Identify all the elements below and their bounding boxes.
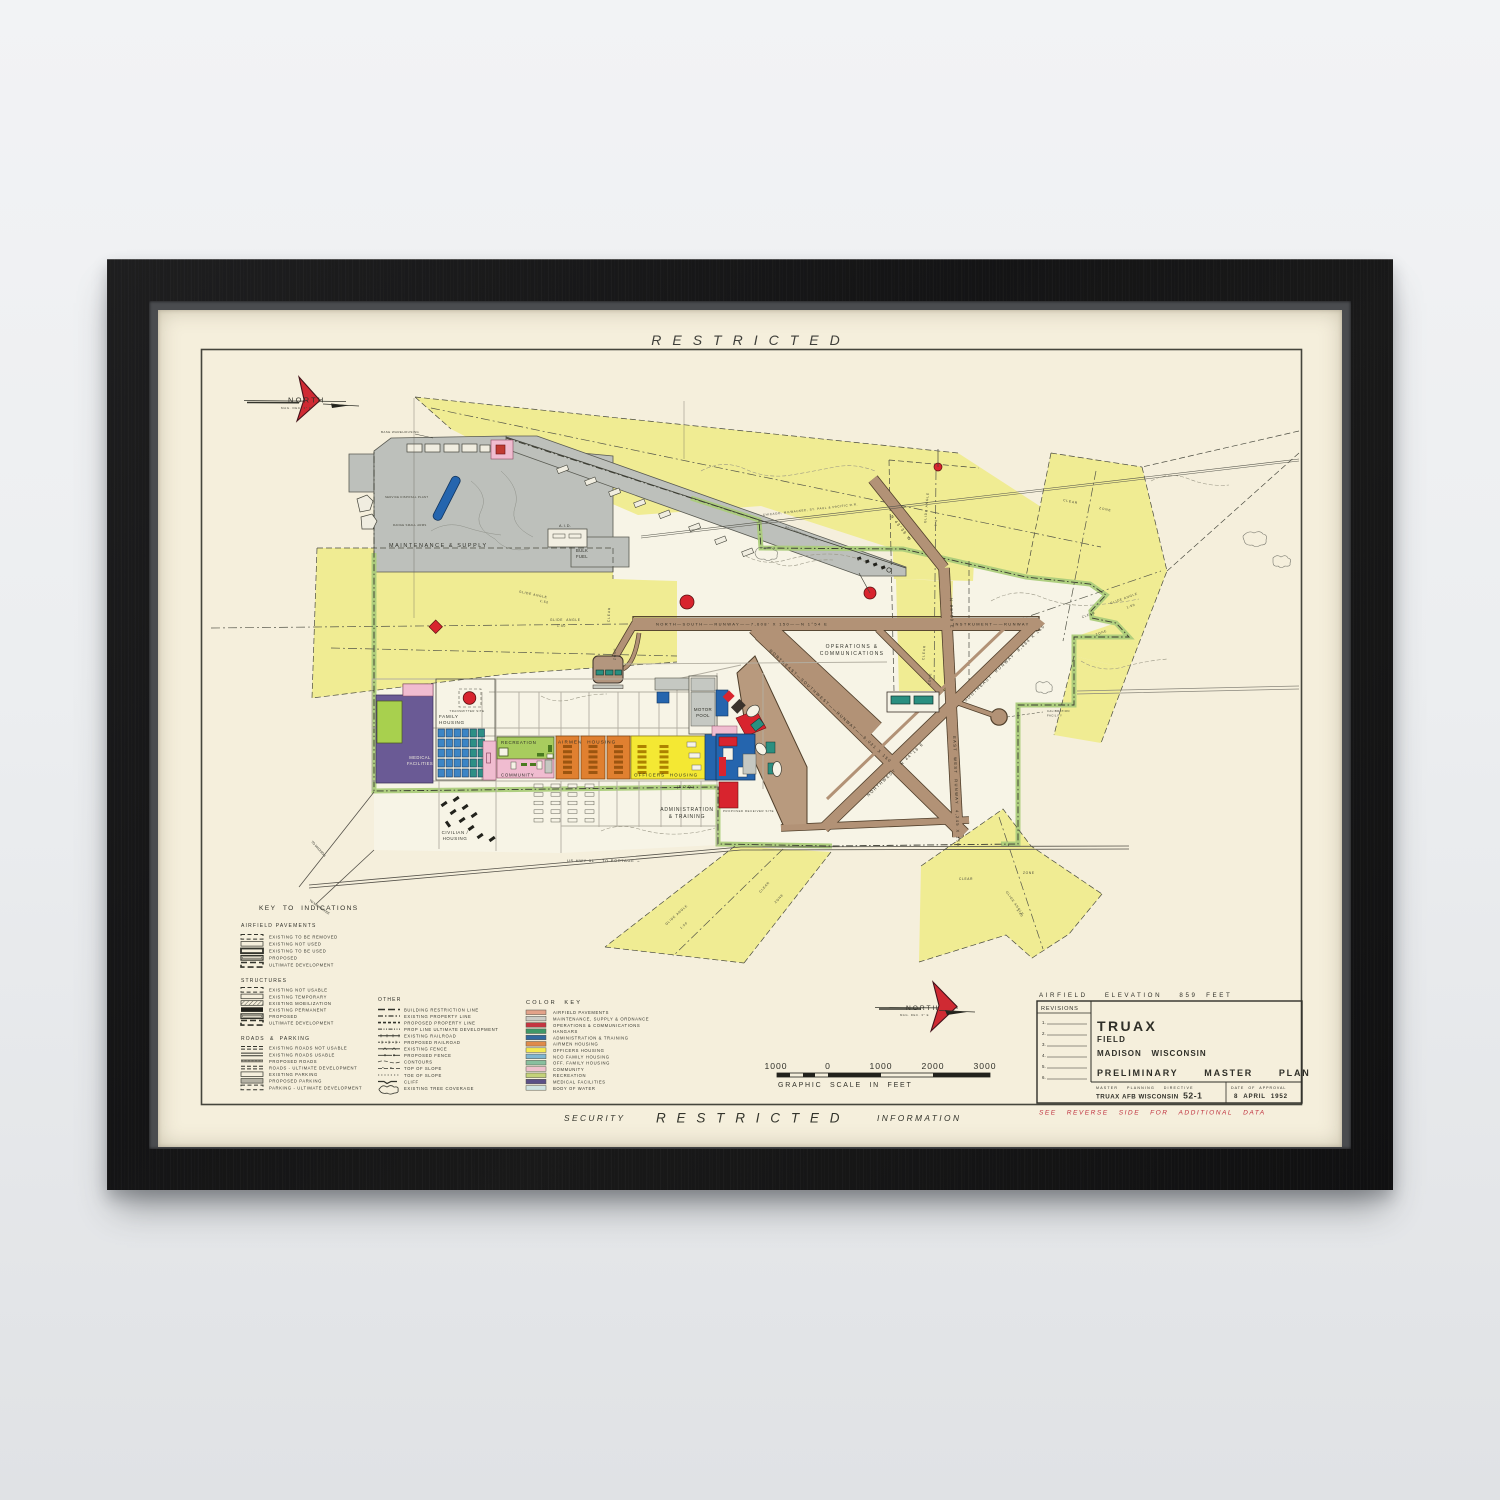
svg-text:RANGE SMALL ARMS: RANGE SMALL ARMS [393, 523, 427, 527]
svg-text:EXISTING PERMANENT: EXISTING PERMANENT [269, 1008, 327, 1013]
svg-text:MAINTENANCE, SUPPLY & ORDNANCE: MAINTENANCE, SUPPLY & ORDNANCE [553, 1017, 649, 1022]
svg-text:MADISON WISCONSIN: MADISON WISCONSIN [1097, 1049, 1207, 1058]
svg-text:A.I.D.: A.I.D. [559, 524, 572, 528]
svg-text:EXISTING NOT USED: EXISTING NOT USED [269, 942, 322, 947]
svg-text:BUILDING RESTRICTION LINE: BUILDING RESTRICTION LINE [404, 1007, 479, 1012]
svg-text:EXISTING TEMPORARY: EXISTING TEMPORARY [269, 994, 327, 999]
svg-text:INFORMATION: INFORMATION [877, 1113, 961, 1123]
svg-text:SECURITY: SECURITY [564, 1113, 626, 1123]
svg-text:EXISTING TO BE REMOVED: EXISTING TO BE REMOVED [269, 935, 338, 940]
svg-text:ROADS - ULTIMATE DEVELOPMENT: ROADS - ULTIMATE DEVELOPMENT [269, 1066, 357, 1071]
svg-text:COLOR KEY: COLOR KEY [526, 1000, 582, 1006]
svg-text:CLEAR: CLEAR [607, 607, 612, 622]
svg-text:0: 0 [825, 1061, 831, 1071]
svg-text:NORTH: NORTH [288, 396, 326, 405]
svg-text:FUEL: FUEL [576, 554, 588, 559]
svg-text:MEDICAL: MEDICAL [409, 755, 431, 760]
svg-text:EXISTING FENCE: EXISTING FENCE [404, 1047, 447, 1052]
svg-text:1:50: 1:50 [557, 624, 566, 628]
svg-text:EXISTING NOT USABLE: EXISTING NOT USABLE [269, 988, 328, 993]
svg-text:BULK: BULK [576, 548, 588, 553]
svg-text:AIRMEN HOUSING: AIRMEN HOUSING [558, 740, 616, 745]
svg-text:PROPOSED RAILROAD: PROPOSED RAILROAD [404, 1040, 461, 1045]
svg-text:3000: 3000 [973, 1061, 996, 1071]
svg-text:FIELD: FIELD [1097, 1035, 1126, 1044]
svg-text:TO MADISON: TO MADISON [310, 840, 327, 858]
svg-text:INSTRUMENT——RUNWAY: INSTRUMENT——RUNWAY [953, 622, 1030, 627]
svg-text:BASE WAREHOUSING: BASE WAREHOUSING [381, 430, 419, 434]
svg-text:POOL: POOL [696, 713, 710, 718]
svg-text:HANGARS: HANGARS [553, 1029, 578, 1034]
svg-text:PROPOSED PROPERTY LINE: PROPOSED PROPERTY LINE [404, 1020, 476, 1025]
svg-text:FACILITIES: FACILITIES [407, 761, 433, 766]
svg-text:OFFICERS HOUSING: OFFICERS HOUSING [553, 1048, 604, 1053]
svg-text:EXISTING PROPERTY LINE: EXISTING PROPERTY LINE [404, 1014, 471, 1019]
svg-text:SERVICE DISPOSAL PLANT: SERVICE DISPOSAL PLANT [385, 495, 428, 499]
svg-text:CIVILIAN /: CIVILIAN / [442, 830, 469, 835]
svg-text:EXISTING TO BE USED: EXISTING TO BE USED [269, 949, 326, 954]
svg-text:2.: 2. [1042, 1031, 1046, 1036]
svg-text:GLIDE ANGLE: GLIDE ANGLE [550, 618, 581, 622]
svg-text:OTHER: OTHER [378, 997, 402, 1003]
svg-text:AIRFIELD ELEVATION 859: AIRFIELD ELEVATION 859 FEET [1039, 992, 1232, 999]
svg-text:ZONE: ZONE [1023, 871, 1035, 875]
svg-text:AIRMEN HOUSING: AIRMEN HOUSING [553, 1042, 598, 1047]
svg-text:REVISIONS: REVISIONS [1041, 1006, 1079, 1012]
svg-text:1000: 1000 [869, 1061, 892, 1071]
svg-text:TOP OF SLOPE: TOP OF SLOPE [404, 1066, 442, 1071]
svg-text:ULTIMATE DEVELOPMENT: ULTIMATE DEVELOPMENT [269, 963, 334, 968]
svg-text:KEY TO INDICATIONS: KEY TO INDICATIONS [259, 905, 359, 912]
svg-text:OFF. FAMILY HOUSING: OFF. FAMILY HOUSING [553, 1061, 610, 1066]
svg-text:SEE REVERSE SIDE FOR A: SEE REVERSE SIDE FOR ADDITIONAL DATA [1039, 1110, 1266, 1117]
svg-text:TRUAX: TRUAX [1097, 1018, 1157, 1034]
svg-text:PROPOSED RECEIVER SITE: PROPOSED RECEIVER SITE [723, 809, 774, 813]
svg-text:PROPOSED FENCE: PROPOSED FENCE [404, 1053, 452, 1058]
svg-text:(B.O.Q.): (B.O.Q.) [677, 785, 694, 789]
svg-text:STRUCTURES: STRUCTURES [241, 978, 287, 984]
svg-text:6.: 6. [1042, 1075, 1046, 1080]
svg-text:AIRFIELD PAVEMENTS: AIRFIELD PAVEMENTS [553, 1010, 609, 1015]
svg-text:ULTIMATE DEVELOPMENT: ULTIMATE DEVELOPMENT [269, 1021, 334, 1026]
svg-text:3.: 3. [1042, 1042, 1046, 1047]
svg-text:FAMILY: FAMILY [439, 714, 459, 719]
svg-text:ADMINISTRATION: ADMINISTRATION [660, 807, 714, 813]
svg-text:CALIBRATION: CALIBRATION [1047, 709, 1070, 713]
svg-text:CLIFF: CLIFF [404, 1079, 419, 1084]
svg-text:MEDICAL FACILITIES: MEDICAL FACILITIES [553, 1080, 606, 1085]
svg-text:1000: 1000 [764, 1061, 787, 1071]
svg-text:RESTRICTED: RESTRICTED [656, 1111, 850, 1126]
svg-text:OFFICERS HOUSING: OFFICERS HOUSING [634, 773, 698, 778]
svg-text:TRUAX AFB WISCONSIN 52-1: TRUAX AFB WISCONSIN 52-1 [1096, 1091, 1202, 1101]
svg-text:RECREATION: RECREATION [553, 1073, 586, 1078]
svg-text:TOE OF SLOPE: TOE OF SLOPE [404, 1073, 442, 1078]
svg-text:NORTH: NORTH [906, 1005, 939, 1012]
svg-text:PRELIMINARY MASTER P: PRELIMINARY MASTER PLAN [1097, 1068, 1311, 1078]
svg-text:MAG. DEC. 3° E: MAG. DEC. 3° E [281, 406, 312, 410]
svg-text:PROP LINE ULTIMATE DEVELOPMENT: PROP LINE ULTIMATE DEVELOPMENT [404, 1027, 498, 1032]
svg-text:DATE OF APPROVAL: DATE OF APPROVAL [1231, 1086, 1286, 1090]
svg-text:4.: 4. [1042, 1053, 1046, 1058]
svg-text:EXISTING TREE COVERAGE: EXISTING TREE COVERAGE [404, 1086, 474, 1091]
svg-text:& TRAINING: & TRAINING [669, 814, 706, 820]
svg-text:NORTH—SOUTH——RUNWAY——7,608’ X: NORTH—SOUTH——RUNWAY——7,608’ X 150——N 1°5… [656, 622, 828, 627]
svg-text:MAINTENANCE & SUPPLY: MAINTENANCE & SUPPLY [389, 543, 488, 549]
svg-text:1.: 1. [1042, 1020, 1046, 1025]
svg-text:2000: 2000 [921, 1061, 944, 1071]
svg-text:AIRFIELD PAVEMENTS: AIRFIELD PAVEMENTS [241, 923, 317, 929]
svg-text:BODY OF WATER: BODY OF WATER [553, 1086, 595, 1091]
svg-text:COMMUNITY: COMMUNITY [553, 1067, 584, 1072]
svg-text:PARKING - ULTIMATE DEVELOPMENT: PARKING - ULTIMATE DEVELOPMENT [269, 1085, 362, 1090]
svg-text:EXISTING ROADS USABLE: EXISTING ROADS USABLE [269, 1052, 335, 1057]
svg-text:RECREATION: RECREATION [501, 740, 536, 745]
svg-text:8 APRIL 1952: 8 APRIL 1952 [1234, 1093, 1288, 1100]
svg-text:EXISTING PARKING: EXISTING PARKING [269, 1072, 318, 1077]
svg-text:NCO FAMILY HOUSING: NCO FAMILY HOUSING [553, 1054, 610, 1059]
svg-text:CONTOURS: CONTOURS [404, 1060, 433, 1065]
svg-text:PROPOSED: PROPOSED [269, 1014, 298, 1019]
svg-text:MAG. DEC. 3° E: MAG. DEC. 3° E [900, 1013, 929, 1017]
svg-text:ZONE: ZONE [613, 647, 617, 660]
svg-text:MOTOR: MOTOR [694, 707, 712, 712]
svg-text:FACILITY: FACILITY [1047, 714, 1062, 718]
svg-text:GRAPHIC SCALE IN FEET: GRAPHIC SCALE IN FEET [778, 1082, 913, 1089]
svg-text:COMMUNITY: COMMUNITY [501, 773, 534, 778]
svg-text:PROPOSED: PROPOSED [269, 956, 298, 961]
svg-text:ROADS & PARKING: ROADS & PARKING [241, 1036, 310, 1042]
svg-text:OPERATIONS & COMMUNICATIONS: OPERATIONS & COMMUNICATIONS [553, 1023, 640, 1028]
svg-text:EXISTING ROADS NOT USABLE: EXISTING ROADS NOT USABLE [269, 1046, 347, 1051]
svg-text:OPERATIONS &: OPERATIONS & [826, 644, 879, 650]
svg-text:HOUSING: HOUSING [439, 720, 465, 725]
svg-text:TRANSMITTER SITE: TRANSMITTER SITE [450, 709, 485, 713]
svg-text:1:6: 1:6 [934, 519, 939, 526]
svg-text:PROPOSED ROADS: PROPOSED ROADS [269, 1059, 317, 1064]
svg-text:5.: 5. [1042, 1064, 1046, 1069]
svg-text:EXISTING RAILROAD: EXISTING RAILROAD [404, 1034, 456, 1039]
svg-text:ADMINISTRATION & TRAINING: ADMINISTRATION & TRAINING [553, 1035, 629, 1040]
svg-text:RESTRICTED: RESTRICTED [651, 332, 850, 348]
svg-text:CLEAR: CLEAR [959, 877, 973, 881]
svg-text:EXISTING MOBILIZATION: EXISTING MOBILIZATION [269, 1001, 332, 1006]
svg-text:HOUSING: HOUSING [443, 836, 468, 841]
svg-text:PROPOSED PARKING: PROPOSED PARKING [269, 1079, 322, 1084]
svg-text:COMMUNICATIONS: COMMUNICATIONS [820, 651, 885, 657]
svg-text:MASTER PLANNING DIRECTIV: MASTER PLANNING DIRECTIVE [1096, 1086, 1194, 1090]
